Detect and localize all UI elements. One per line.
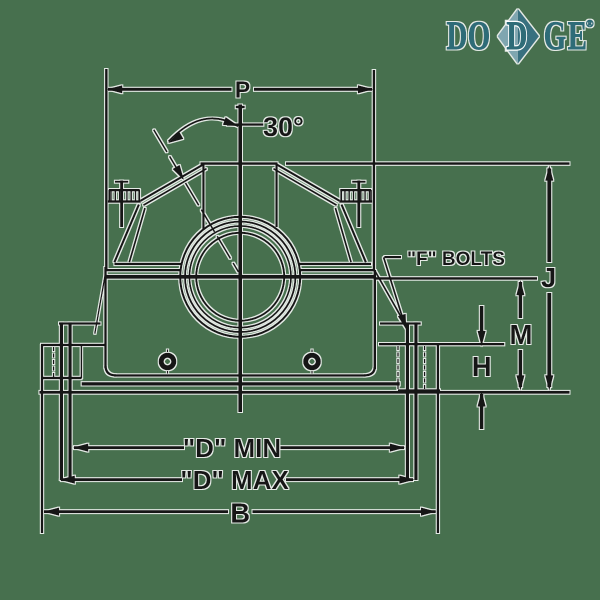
svg-text:H: H: [472, 351, 492, 382]
svg-text:B: B: [230, 498, 250, 529]
svg-text:®: ®: [586, 19, 594, 30]
svg-text:J: J: [541, 262, 556, 293]
svg-text:"D" MIN: "D" MIN: [183, 433, 281, 463]
svg-text:O: O: [468, 13, 490, 58]
svg-text:"F" BOLTS: "F" BOLTS: [407, 249, 505, 270]
svg-text:M: M: [510, 319, 533, 350]
svg-text:30°: 30°: [263, 112, 304, 142]
svg-text:E: E: [568, 13, 587, 58]
svg-text:G: G: [544, 13, 566, 58]
svg-text:"D" MAX: "D" MAX: [180, 465, 289, 495]
svg-text:D: D: [447, 13, 468, 58]
svg-text:D: D: [507, 13, 528, 58]
svg-text:P: P: [235, 77, 250, 103]
